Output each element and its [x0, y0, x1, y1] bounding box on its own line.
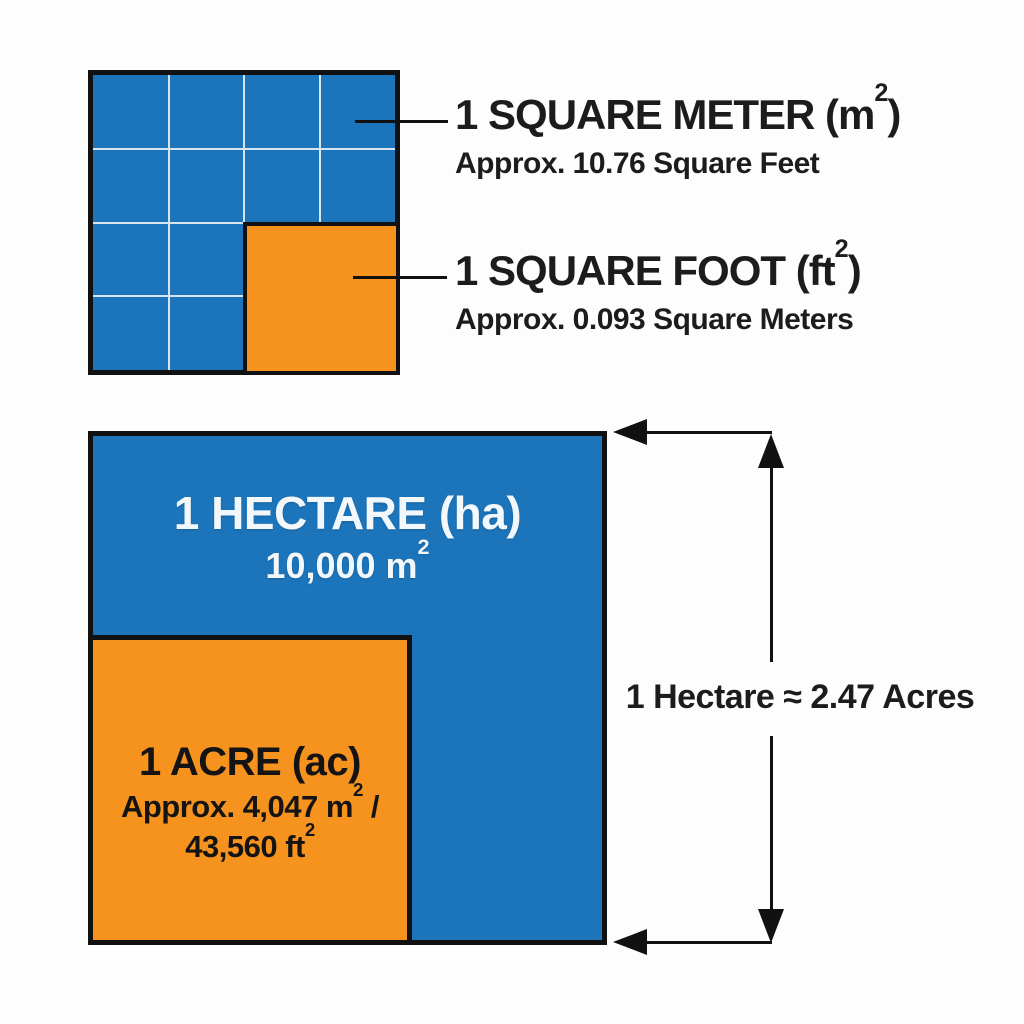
acre-area-value-imperial: 43,560 ft2 [93, 829, 407, 865]
square-meter-title: 1 SQUARE METER (m2) [455, 92, 900, 138]
hectare-shape: 1 HECTARE (ha) 10,000 m2 1 ACRE (ac) App… [88, 431, 607, 945]
arrowhead-up-icon [758, 434, 784, 468]
leader-line-meter [355, 120, 448, 123]
superscript: 2 [874, 79, 887, 107]
dimension-line-top [640, 431, 772, 434]
dimension-line-bottom [640, 941, 772, 944]
hectare-area-value: 10,000 m2 [93, 545, 602, 587]
superscript: 2 [418, 534, 430, 559]
title-text: ) [887, 91, 900, 138]
area-text: 43,560 ft [185, 829, 305, 864]
title-text: 1 SQUARE METER (m [455, 91, 874, 138]
grid-line [93, 148, 395, 150]
area-text: 10,000 m [265, 545, 417, 586]
area-units-infographic: 1 SQUARE METER (m2) Approx. 10.76 Square… [0, 0, 1024, 1024]
area-text: / [363, 789, 379, 824]
arrowhead-down-icon [758, 909, 784, 943]
superscript: 2 [353, 779, 363, 800]
square-foot-label: 1 SQUARE FOOT (ft2) Approx. 0.093 Square… [455, 248, 861, 337]
square-meter-label: 1 SQUARE METER (m2) Approx. 10.76 Square… [455, 92, 900, 181]
acre-shape: 1 ACRE (ac) Approx. 4,047 m2 / 43,560 ft… [88, 635, 412, 945]
area-text: Approx. 4,047 m [121, 789, 353, 824]
dimension-line-vertical-upper [770, 446, 773, 662]
title-text: 1 SQUARE FOOT (ft [455, 247, 835, 294]
leader-line-foot [353, 276, 447, 279]
dimension-line-vertical-lower [770, 736, 773, 928]
square-meter-subtitle: Approx. 10.76 Square Feet [455, 147, 900, 181]
hectare-title: 1 HECTARE (ha) [93, 486, 602, 540]
superscript: 2 [305, 819, 315, 840]
dimension-label: 1 Hectare ≈ 2.47 Acres [617, 672, 983, 723]
arrowhead-left-bottom-icon [613, 929, 647, 955]
square-foot-title: 1 SQUARE FOOT (ft2) [455, 248, 861, 294]
arrowhead-left-top-icon [613, 419, 647, 445]
square-foot-subtitle: Approx. 0.093 Square Meters [455, 303, 861, 337]
title-text: ) [848, 247, 861, 294]
superscript: 2 [835, 235, 848, 263]
square-foot-shape [243, 222, 400, 375]
square-meter-shape [88, 70, 400, 375]
acre-area-value-metric: Approx. 4,047 m2 / [93, 789, 407, 825]
